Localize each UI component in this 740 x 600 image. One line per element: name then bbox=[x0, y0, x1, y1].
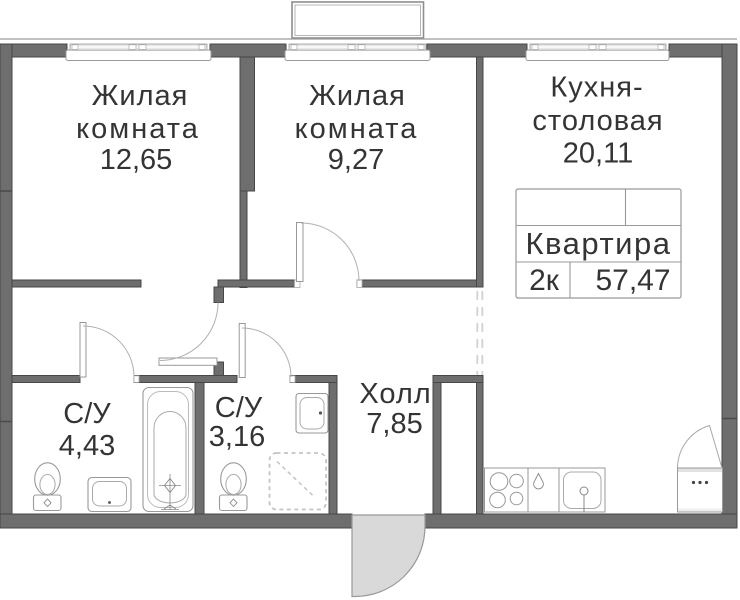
svg-text:Холл: Холл bbox=[359, 378, 431, 410]
svg-text:комната: комната bbox=[295, 113, 419, 145]
svg-text:С/У: С/У bbox=[215, 392, 263, 424]
svg-text:Квартира: Квартира bbox=[526, 226, 672, 261]
svg-text:57,47: 57,47 bbox=[595, 264, 670, 297]
svg-text:Кухня-: Кухня- bbox=[550, 72, 643, 104]
svg-text:столовая: столовая bbox=[532, 105, 663, 137]
svg-text:2к: 2к bbox=[529, 264, 560, 297]
svg-text:3,16: 3,16 bbox=[209, 421, 265, 453]
svg-text:12,65: 12,65 bbox=[100, 144, 173, 176]
svg-text:комната: комната bbox=[76, 113, 200, 145]
svg-text:Жилая: Жилая bbox=[92, 80, 189, 112]
svg-text:С/У: С/У bbox=[63, 398, 111, 430]
svg-text:Жилая: Жилая bbox=[309, 80, 406, 112]
svg-text:20,11: 20,11 bbox=[563, 138, 633, 170]
svg-text:4,43: 4,43 bbox=[59, 430, 115, 462]
svg-text:7,85: 7,85 bbox=[366, 408, 422, 440]
svg-text:9,27: 9,27 bbox=[328, 144, 384, 176]
